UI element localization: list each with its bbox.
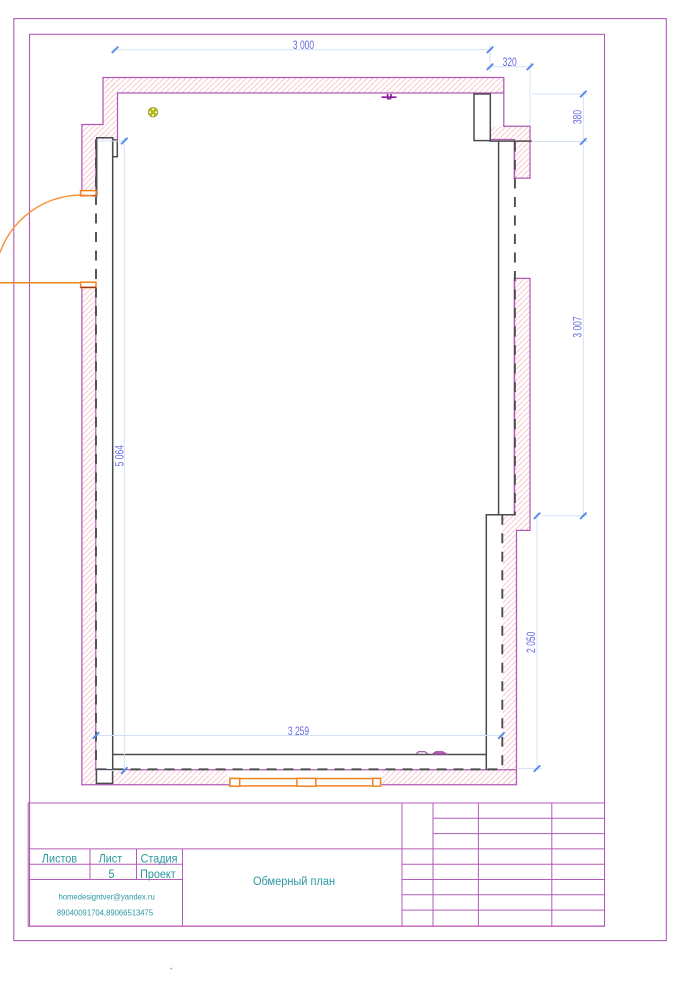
svg-text:5: 5 [108,869,114,882]
svg-text:Листов: Листов [42,853,77,866]
svg-text:320: 320 [503,57,518,70]
svg-text:3 259: 3 259 [288,726,310,739]
svg-text:Лист: Лист [99,853,123,866]
svg-text:homedesigntver@yandex.ru: homedesigntver@yandex.ru [58,892,154,901]
svg-text:Обмерный план: Обмерный план [253,875,335,888]
svg-text:380: 380 [573,110,586,125]
svg-text:2 050: 2 050 [526,631,539,653]
svg-text:3 000: 3 000 [293,40,315,53]
svg-text:Стадия: Стадия [141,853,178,866]
svg-text:Проект: Проект [140,869,176,882]
svg-text:3 007: 3 007 [573,316,586,338]
svg-text:5 064: 5 064 [114,445,127,467]
svg-text:89040091704,89066513475: 89040091704,89066513475 [57,908,154,917]
